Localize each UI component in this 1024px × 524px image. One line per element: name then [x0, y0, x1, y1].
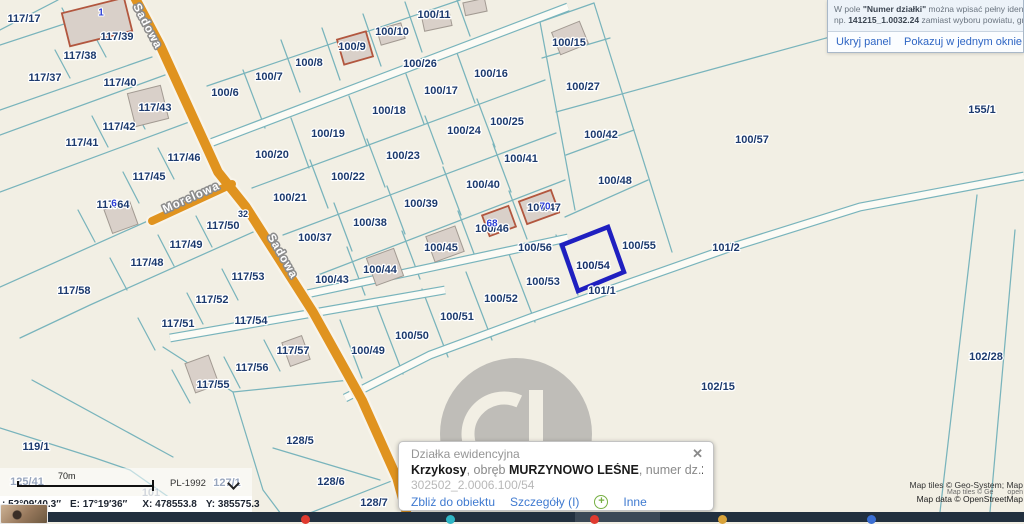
parcel-label: 100/45: [424, 242, 458, 254]
parcel-label: 100/51: [440, 311, 474, 323]
parcel-label: 100/11: [417, 9, 450, 21]
parcel-label: 100/20: [255, 149, 289, 161]
address-number-label: 70: [539, 202, 551, 213]
parcel-label: 100/57: [735, 134, 769, 146]
taskbar-icon-5[interactable]: [867, 515, 876, 524]
taskbar-icon-2[interactable]: [446, 515, 455, 524]
parcel-label: 100/6: [211, 87, 239, 99]
parcel-label: 117/53: [231, 271, 264, 283]
parcel-label: 100/21: [273, 192, 307, 204]
parcel-label: 100/16: [474, 68, 508, 80]
parcel-label: 117/48: [130, 257, 163, 269]
address-number-label: 68: [486, 219, 498, 230]
coord-y: Y: 385575.3: [206, 499, 260, 510]
scale-bar: [16, 479, 158, 493]
photo-thumbnail[interactable]: [0, 504, 48, 524]
parcel-label: 100/42: [584, 129, 618, 141]
parcel-label: 128/5: [286, 435, 314, 447]
parcel-label: 100/19: [311, 128, 345, 140]
parcel-label: 100/52: [484, 293, 518, 305]
details-link[interactable]: Szczegóły (I): [510, 495, 579, 509]
parcel-label: 100/41: [504, 153, 538, 165]
taskbar-icon-1[interactable]: [301, 515, 310, 524]
other-link[interactable]: Inne: [623, 495, 646, 509]
highlighted-parcel-label: 100/54: [576, 260, 611, 272]
parcel-label: 117/37: [28, 72, 61, 84]
parcel-label: 117/55: [196, 379, 229, 391]
parcel-label: 100/18: [372, 105, 406, 117]
help-text: W pole "Numer działki" można wpisać pełn…: [828, 0, 1023, 28]
parcel-label: 100/17: [424, 85, 458, 97]
parcel-description: Krzykosy, obręb MURZYNOWO LEŚNE, numer d…: [411, 463, 703, 477]
parcel-label: 100/55: [622, 240, 656, 252]
parcel-label: 100/40: [466, 179, 500, 191]
parcel-label: 100/9: [338, 41, 366, 53]
parcel-label: 101/1: [588, 285, 616, 297]
scale-box: 70m PL-1992: [0, 468, 252, 496]
parcel-label: 100/15: [552, 37, 586, 49]
single-window-link[interactable]: Pokazuj w jednym oknie: [904, 36, 1022, 48]
parcel-label: 100/43: [315, 274, 349, 286]
parcel-label: 100/27: [566, 81, 600, 93]
chevron-down-icon[interactable]: [227, 477, 240, 490]
parcel-label: 117/40: [103, 77, 136, 89]
coord-lon: E: 17°19′36″: [70, 499, 127, 510]
parcel-label: 117/46: [167, 152, 200, 164]
parcel-label: 155/1: [968, 104, 996, 116]
parcel-label: 117/57: [276, 345, 309, 357]
parcel-label: 100/24: [447, 125, 482, 137]
parcel-label: 117/39: [100, 31, 133, 43]
parcel-label: 100/50: [395, 330, 429, 342]
taskbar-icon-4[interactable]: [718, 515, 727, 524]
popup-title: Działka ewidencyjna: [411, 447, 520, 461]
parcel-label: 100/39: [404, 198, 438, 210]
parcel-label: 128/7: [360, 497, 388, 509]
parcel-label: 102/28: [969, 351, 1003, 363]
parcel-label: 100/23: [386, 150, 420, 162]
crs-selector[interactable]: PL-1992: [170, 478, 206, 489]
parcel-info-popup: Działka ewidencyjna ✕ Krzykosy, obręb MU…: [398, 441, 714, 511]
parcel-label: 100/26: [403, 58, 437, 70]
parcel-label: 100/8: [295, 57, 323, 69]
taskbar-active-slot: [575, 512, 660, 522]
parcel-label: 117/51: [161, 318, 194, 330]
parcel-label: 128/6: [317, 476, 345, 488]
parcel-label: 117/56: [235, 362, 268, 374]
zoom-to-object-link[interactable]: Zbliż do obiektu: [411, 495, 495, 509]
map-attribution: Map tiles © Geo-System; Map Map tiles © …: [873, 481, 1023, 503]
parcel-label: 100/25: [490, 116, 524, 128]
parcel-label: 117/50: [206, 220, 239, 232]
parcel-label: 117/41: [65, 137, 98, 149]
parcel-label: 100/38: [353, 217, 387, 229]
parcel-label: 117/45: [132, 171, 165, 183]
parcel-label: 101/2: [712, 242, 740, 254]
parcel-label: 100/37: [298, 232, 332, 244]
address-number-label: 1: [98, 8, 104, 19]
parcel-label: 117/54: [234, 315, 268, 327]
parcel-label: 100/49: [351, 345, 385, 357]
parcel-label: 100/44: [363, 264, 398, 276]
parcel-label: 117/38: [63, 50, 96, 62]
taskbar-icon-3[interactable]: [590, 515, 599, 524]
plus-circle-icon[interactable]: +: [594, 495, 608, 509]
parcel-label: 117/58: [57, 285, 90, 297]
parcel-label: 100/53: [526, 276, 560, 288]
parcel-label: 117/42: [102, 121, 135, 133]
parcel-label: 100/48: [598, 175, 632, 187]
close-icon[interactable]: ✕: [692, 447, 703, 460]
coord-x: X: 478553.8: [142, 499, 197, 510]
address-number-label: 6: [111, 199, 117, 210]
parcel-label: 32: [238, 209, 248, 219]
attribution-data: Map data © OpenStreetMap: [873, 495, 1023, 504]
help-panel: W pole "Numer działki" można wpisać pełn…: [827, 0, 1024, 53]
parcel-id: 302502_2.0006.100/54: [411, 478, 703, 492]
hide-panel-link[interactable]: Ukryj panel: [836, 36, 891, 48]
parcel-label: 100/7: [255, 71, 283, 83]
parcel-label: 100/10: [375, 26, 409, 38]
parcel-label: 117/43: [138, 102, 171, 114]
geoportal-screen: { "map": { "bg_color": "#f2efe4", "line_…: [0, 0, 1024, 522]
parcel-label: 117/49: [169, 239, 202, 251]
parcel-label: 117/52: [195, 294, 228, 306]
parcel-label: 100/22: [331, 171, 365, 183]
parcel-label: 117/17: [7, 13, 40, 25]
parcel-label: 102/15: [701, 381, 735, 393]
parcel-label: 100/56: [518, 242, 552, 254]
attribution-ghost: Map tiles © Geopen: [873, 489, 1023, 496]
parcel-label: 119/1: [23, 441, 50, 453]
